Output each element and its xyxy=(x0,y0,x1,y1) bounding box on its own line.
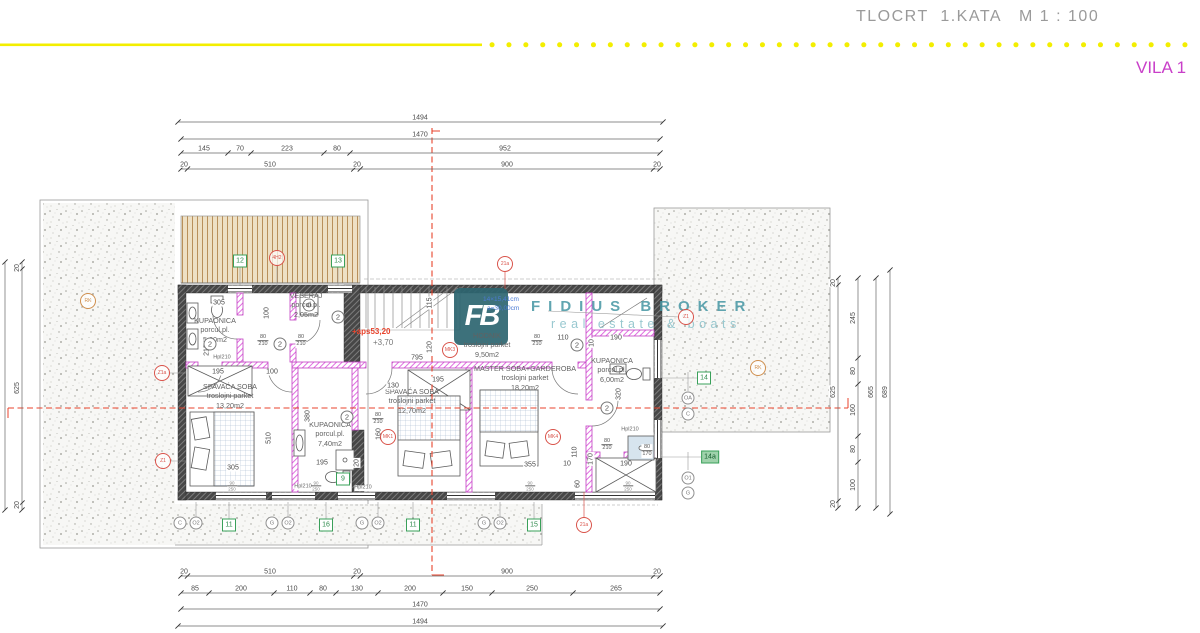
lintel-mark: Hpl210 xyxy=(621,427,638,433)
detail-mark-4H2: 4H2 xyxy=(269,250,285,266)
opening-size-mark: 80210 xyxy=(601,438,612,452)
room-finish: troslojni parket xyxy=(474,373,576,382)
detail-mark-RK: RK xyxy=(750,360,766,376)
annotation-layer: KUPAONICAporcul.pl.5,30m2VEŠERAJporcul.p… xyxy=(0,0,1200,633)
room-area: 12,70m2 xyxy=(385,406,439,415)
inner-dimension: 60 xyxy=(575,479,582,489)
detail-mark-Z1: Z1 xyxy=(155,453,171,469)
inner-dimension: 100 xyxy=(264,306,271,320)
inner-dimension: 195 xyxy=(211,369,225,376)
room-label: KUPAONICAporcul.pl.7,40m2 xyxy=(309,420,351,448)
room-finish: troslojni parket xyxy=(203,391,257,400)
window-mark-11: 11 xyxy=(406,519,420,532)
floor-plan-page: 1494147014570223809522051020900202051020… xyxy=(0,0,1200,633)
opening-size-part: 250 xyxy=(623,486,633,492)
opening-size-mark: 80210 xyxy=(257,334,268,348)
opening-size-mark: 80210 xyxy=(295,334,306,348)
opening-size-mark: 80210 xyxy=(372,412,383,426)
inner-dimension: 20 xyxy=(354,458,361,468)
inner-dimension: 380 xyxy=(305,409,312,423)
opening-size-part: 210 xyxy=(257,341,268,348)
window-mark-14a: 14a xyxy=(701,451,719,464)
utility-mark-O1: O1 xyxy=(682,472,695,485)
room-area: 2,05m2 xyxy=(290,310,323,319)
utility-mark-G: G xyxy=(682,487,695,500)
utility-mark-G: G xyxy=(478,517,491,530)
room-label: VEŠERAJporcul.pl.2,05m2 xyxy=(290,291,323,319)
room-label: KUPAONICAporcul.pl.6,00m2 xyxy=(591,356,633,384)
detail-mark-Z1a: Z1a xyxy=(154,365,170,381)
utility-mark-O2: O2 xyxy=(190,517,203,530)
room-label: SPAVAĆA SOBAtroslojni parket12,70m2 xyxy=(385,387,439,415)
detail-mark-Z1: Z1 xyxy=(678,309,694,325)
utility-mark-OA: OA xyxy=(682,392,695,405)
utility-mark-O2: O2 xyxy=(494,517,507,530)
room-area: 9,50m2 xyxy=(464,350,511,359)
opening-size-part: 250 xyxy=(311,486,321,492)
room-area: 7,40m2 xyxy=(309,439,351,448)
opening-size-part: 250 xyxy=(525,486,535,492)
lintel-mark: Hpl210 xyxy=(213,355,230,361)
door-mark: 2 xyxy=(601,402,614,415)
inner-dimension: 110 xyxy=(572,445,579,458)
inner-dimension: 170 xyxy=(588,452,595,466)
utility-mark-G: G xyxy=(356,517,369,530)
room-name: VEŠERAJ xyxy=(290,291,323,300)
window-mark-14: 14 xyxy=(697,372,711,385)
door-mark: 2 xyxy=(332,311,345,324)
inner-dimension: 100 xyxy=(265,369,279,376)
utility-mark-G: G xyxy=(266,517,279,530)
inner-dimension: 190 xyxy=(609,335,623,342)
detail-mark-21a: 21a xyxy=(497,256,513,272)
room-name: HODNIK xyxy=(464,331,511,340)
room-name: MASTER SOBA+GARDEROBA xyxy=(474,364,576,373)
room-area: 13,20m2 xyxy=(203,401,257,410)
window-mark-13: 13 xyxy=(331,255,345,268)
opening-size-mark: 80210 xyxy=(531,334,542,348)
window-mark-12: 12 xyxy=(233,255,247,268)
opening-size-part: 210 xyxy=(372,419,383,426)
room-name: KUPAONICA xyxy=(194,316,236,325)
opening-size-mark: 90250 xyxy=(525,480,535,491)
door-mark: 2 xyxy=(274,338,287,351)
opening-size-mark: 90250 xyxy=(311,480,321,491)
door-mark: 2 xyxy=(341,411,354,424)
room-area: 18,20m2 xyxy=(474,383,576,392)
opening-size-part: 210 xyxy=(531,341,542,348)
inner-dimension: 305 xyxy=(212,300,226,307)
window-mark-11: 11 xyxy=(222,519,236,532)
opening-size-part: 250 xyxy=(227,486,237,492)
utility-mark-O2: O2 xyxy=(372,517,385,530)
window-mark-9: 9 xyxy=(336,473,350,486)
door-mark: 2 xyxy=(204,338,217,351)
inner-dimension: 10 xyxy=(562,461,572,468)
door-mark: 2 xyxy=(571,339,584,352)
inner-dimension: 195 xyxy=(431,377,445,384)
utility-mark-C: C xyxy=(682,408,695,421)
room-finish: troslojni parket xyxy=(464,340,511,349)
room-label: HODNIKtroslojni parket9,50m2 xyxy=(464,331,511,359)
opening-size-part: 210 xyxy=(295,341,306,348)
opening-size-part: 210 xyxy=(601,445,612,452)
opening-size-part: 170 xyxy=(641,451,652,458)
detail-mark-MK4: MK4 xyxy=(545,429,561,445)
inner-dimension: 355 xyxy=(523,462,537,469)
inner-dimension: 115 xyxy=(427,296,434,309)
inner-dimension: 195 xyxy=(315,460,329,467)
opening-size-mark: 80170 xyxy=(641,444,652,458)
utility-mark-O2: O2 xyxy=(282,517,295,530)
room-finish: porcul.pl. xyxy=(309,429,351,438)
opening-size-mark: 90250 xyxy=(227,480,237,491)
room-finish: porcul.pl. xyxy=(591,365,633,374)
room-finish: troslojni parket xyxy=(385,396,439,405)
opening-size-mark: 90250 xyxy=(623,480,633,491)
room-name: KUPAONICA xyxy=(591,356,633,365)
window-mark-15: 15 xyxy=(527,519,541,532)
inner-dimension: 110 xyxy=(556,335,569,342)
lintel-mark: Hpl210 xyxy=(294,484,311,490)
inner-dimension: 320 xyxy=(616,387,623,401)
inner-dimension: 510 xyxy=(266,431,273,445)
detail-mark-21a: 21a xyxy=(576,517,592,533)
room-finish: porcul.pl. xyxy=(290,300,323,309)
inner-dimension: 795 xyxy=(410,355,424,362)
inner-dimension: 120 xyxy=(427,340,434,354)
utility-mark-C: C xyxy=(174,517,187,530)
inner-dimension: 130 xyxy=(386,383,400,390)
window-mark-16: 16 xyxy=(319,519,333,532)
room-label: MASTER SOBA+GARDEROBAtroslojni parket18,… xyxy=(474,364,576,392)
inner-dimension: 190 xyxy=(619,461,633,468)
detail-mark-RK: RK xyxy=(80,293,96,309)
room-label: SPAVAĆA SOBAtroslojni parket13,20m2 xyxy=(203,382,257,410)
inner-dimension: 305 xyxy=(226,465,240,472)
room-area: 6,00m2 xyxy=(591,375,633,384)
room-name: SPAVAĆA SOBA xyxy=(203,382,257,391)
inner-dimension: 10 xyxy=(589,338,596,348)
detail-mark-MK1: MK1 xyxy=(380,429,396,445)
detail-mark-MK3: MK3 xyxy=(442,342,458,358)
room-finish: porcul.pl. xyxy=(194,325,236,334)
lintel-mark: Hpl210 xyxy=(354,485,371,491)
